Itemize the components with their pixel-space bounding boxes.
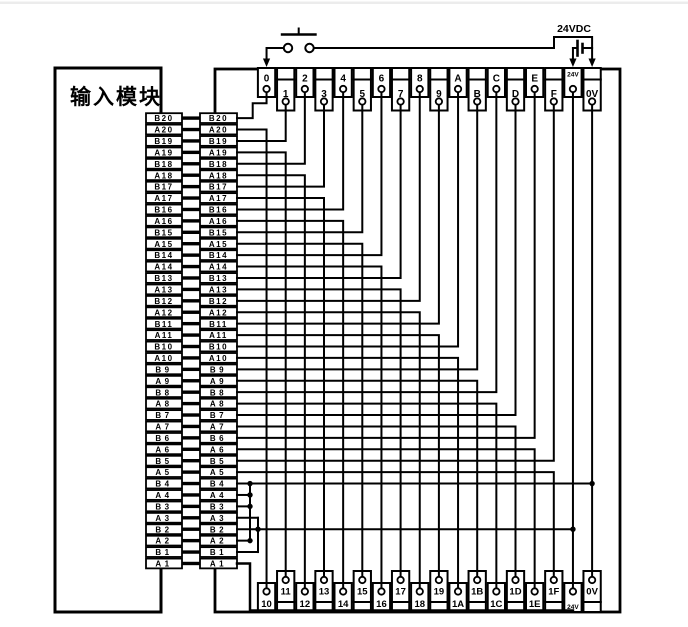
pin-ribbon-bar: [182, 162, 200, 165]
terminal-screw-circle: [455, 588, 461, 594]
pin-label: A20: [209, 126, 228, 135]
terminal-bottom-label: 10: [261, 599, 272, 610]
input-module-label: 输入模块: [70, 85, 162, 109]
pin-ribbon-bar: [182, 139, 200, 142]
terminal-top-label: 24V: [567, 72, 579, 79]
terminal-top-label: E: [531, 74, 538, 85]
terminal-screw-circle: [378, 86, 384, 92]
pin-label: A7: [210, 423, 227, 432]
pin-label: B17: [209, 183, 228, 192]
junction-dot: [255, 527, 260, 532]
pin-label: B13: [209, 274, 228, 283]
junction-dot: [247, 538, 252, 543]
pin-label: A15: [154, 240, 173, 249]
terminal-top-label: 8: [417, 74, 423, 85]
pin-label: B15: [209, 228, 228, 237]
terminal-top-stub: [430, 68, 447, 80]
pin-ribbon-bar: [182, 196, 200, 199]
terminal-screw-circle: [455, 86, 461, 92]
terminal-bottom-label: 1B: [471, 587, 483, 598]
pin-label: A15: [209, 240, 228, 249]
terminal-top-label: 0V: [586, 89, 599, 100]
pin-label: B15: [154, 228, 173, 237]
terminal-top-label: F: [551, 89, 557, 100]
pin-ribbon-bar: [182, 242, 200, 245]
pin-label: A14: [154, 263, 173, 272]
terminal-bottom-label: 16: [376, 599, 387, 610]
terminal-top-label: 9: [436, 89, 442, 100]
pin-ribbon-bar: [182, 470, 200, 473]
terminal-bottom-label: 1E: [529, 599, 541, 610]
wire-supply: [314, 37, 592, 59]
terminal-screw-circle: [474, 577, 480, 583]
pin-label: B10: [209, 343, 228, 352]
pin-label: A2: [210, 537, 227, 546]
terminal-top-label: 0: [264, 74, 270, 85]
diagram-canvas: 0123456789ABCDEF24V0V1011121314151617181…: [0, 0, 688, 627]
pin-label: B2: [210, 525, 227, 534]
terminal-screw-circle: [570, 588, 576, 594]
pin-label: B10: [154, 343, 173, 352]
arrow-down-icon: [263, 59, 270, 68]
terminal-top-label: 7: [398, 89, 404, 100]
pin-ribbon-bar: [182, 208, 200, 211]
pin-label: A18: [154, 171, 173, 180]
pin-ribbon-bar: [182, 356, 200, 359]
pin-label: B16: [209, 206, 228, 215]
pin-label: B4: [155, 480, 172, 489]
pin-label: B4: [210, 480, 227, 489]
terminal-screw-circle: [493, 588, 499, 594]
terminal-bottom-label: 19: [434, 587, 445, 598]
terminal-screw-circle: [340, 588, 346, 594]
terminal-screw-circle: [283, 577, 289, 583]
junction-dot: [247, 492, 252, 497]
terminal-bottom-label: 1D: [509, 587, 521, 598]
pin-label: A2: [155, 537, 172, 546]
terminal-top-label: 1: [283, 89, 289, 100]
terminal-top-label: 2: [302, 74, 308, 85]
terminal-top-stub: [392, 68, 409, 80]
pin-label: A12: [154, 308, 173, 317]
terminal-top-stub: [583, 68, 600, 80]
pin-ribbon-bar: [182, 550, 200, 553]
pin-label: B9: [155, 365, 172, 374]
terminal-screw-circle: [493, 86, 499, 92]
pin-ribbon-bar: [182, 459, 200, 462]
terminal-top-label: 5: [360, 89, 366, 100]
pin-label: B3: [210, 502, 227, 511]
pin-ribbon-bar: [182, 482, 200, 485]
terminal-bottom-label: 15: [357, 587, 368, 598]
pin-label: A9: [155, 377, 172, 386]
pin-label: A7: [155, 423, 172, 432]
pin-ribbon-bar: [182, 402, 200, 405]
terminal-screw-circle: [531, 588, 537, 594]
pin-label: A5: [155, 468, 172, 477]
terminal-screw-circle: [340, 86, 346, 92]
terminal-screw-circle: [570, 86, 576, 92]
terminal-top-stub: [354, 68, 371, 80]
terminal-top-stub: [469, 68, 486, 80]
terminal-top-stub: [315, 68, 332, 80]
pin-ribbon-bar: [182, 185, 200, 188]
pin-ribbon-bar: [182, 368, 200, 371]
pin-label: B16: [154, 206, 173, 215]
terminal-top-stub: [277, 68, 294, 80]
terminal-bottom-label: 18: [414, 599, 425, 610]
terminal-bottom-label: 11: [281, 587, 292, 598]
pin-label: B20: [154, 114, 173, 123]
pin-label: A4: [210, 491, 227, 500]
pin-label: A11: [209, 331, 228, 340]
terminal-screw-circle: [531, 86, 537, 92]
pin-ribbon-bar: [182, 505, 200, 508]
pin-label: A9: [210, 377, 227, 386]
pin-label: B18: [209, 160, 228, 169]
pin-label: B3: [155, 502, 172, 511]
terminal-bottom-label: 13: [319, 587, 330, 598]
pin-label: B1: [210, 548, 227, 557]
terminal-screw-circle: [417, 86, 423, 92]
pin-label: A20: [154, 126, 173, 135]
pin-label: B7: [210, 411, 227, 420]
terminal-top-stub: [507, 68, 524, 80]
pin-ribbon-bar: [182, 299, 200, 302]
pin-label: B12: [209, 297, 228, 306]
pin-ribbon-bar: [182, 151, 200, 154]
pin-ribbon-bar: [182, 390, 200, 393]
pin-label: A19: [209, 148, 228, 157]
pin-label: A8: [210, 400, 227, 409]
pin-ribbon-bar: [182, 345, 200, 348]
pin-label: B20: [209, 114, 228, 123]
pin-ribbon-bar: [182, 493, 200, 496]
pin-ribbon-bar: [182, 265, 200, 268]
terminal-screw-circle: [359, 577, 365, 583]
pin-label: B8: [210, 388, 227, 397]
pin-label: B11: [155, 320, 174, 329]
terminal-screw-circle: [512, 577, 518, 583]
pin-label: A10: [154, 354, 173, 363]
pin-label: B5: [210, 457, 227, 466]
pin-ribbon-bar: [182, 276, 200, 279]
pin-label: A17: [154, 194, 173, 203]
pin-ribbon-bar: [182, 379, 200, 382]
terminal-screw-circle: [378, 588, 384, 594]
terminal-bottom-label: 14: [338, 599, 349, 610]
pin-ribbon-bar: [182, 528, 200, 531]
terminal-screw-circle: [436, 577, 442, 583]
pin-label: A18: [209, 171, 228, 180]
terminal-block-box: [215, 69, 620, 612]
pin-ribbon-bar: [182, 288, 200, 291]
pin-ribbon-bar: [182, 539, 200, 542]
terminal-screw-circle: [302, 588, 308, 594]
pin-label: B5: [155, 457, 172, 466]
pin-label: A3: [210, 514, 227, 523]
terminal-top-stub: [545, 68, 562, 80]
pin-ribbon-bar: [182, 253, 200, 256]
pin-label: A16: [209, 217, 228, 226]
pin-label: A13: [209, 286, 228, 295]
pin-label: A11: [155, 331, 174, 340]
pin-label: B14: [209, 251, 228, 260]
terminal-bottom-label: 24V: [567, 604, 579, 611]
terminal-bottom-label: 1A: [452, 599, 464, 610]
terminal-bottom-label: 17: [395, 587, 406, 598]
terminal-top-label: 3: [321, 89, 327, 100]
pin-label: B6: [155, 434, 172, 443]
pin-label: B19: [154, 137, 173, 146]
pin-label: B2: [155, 525, 172, 534]
terminal-bottom-label: 12: [300, 599, 311, 610]
pin-label: A4: [155, 491, 172, 500]
pin-label: A12: [209, 308, 228, 317]
pin-ribbon-bar: [182, 413, 200, 416]
terminal-top-label: C: [493, 74, 500, 85]
pin-ribbon-bar: [182, 425, 200, 428]
arrow-down-icon: [569, 59, 576, 68]
pin-label: B9: [210, 365, 227, 374]
junction-dot: [570, 527, 575, 532]
pin-ribbon-bar: [182, 128, 200, 131]
pin-label: B14: [154, 251, 173, 260]
pin-label: A3: [155, 514, 172, 523]
pin-label: B8: [155, 388, 172, 397]
terminal-top-label: A: [454, 74, 461, 85]
pin-label: A17: [209, 194, 228, 203]
pin-label: A10: [209, 354, 228, 363]
pin-label: B18: [154, 160, 173, 169]
junction-dot: [247, 481, 252, 486]
pin-ribbon-bar: [182, 116, 200, 119]
power-source-label: 24VDC: [557, 23, 591, 35]
switch-contact-circle: [305, 44, 313, 52]
pin-label: B13: [154, 274, 173, 283]
pin-label: A5: [210, 468, 227, 477]
pin-label: A6: [210, 445, 227, 454]
terminal-top-label: 4: [340, 74, 346, 85]
pin-ribbon-bar: [182, 516, 200, 519]
terminal-bottom-stub: [583, 602, 600, 612]
pin-ribbon-bar: [182, 436, 200, 439]
pin-label: B19: [209, 137, 228, 146]
terminal-bottom-label: 0V: [586, 587, 598, 598]
terminal-screw-circle: [417, 588, 423, 594]
pin-label: A19: [154, 148, 173, 157]
pin-label: B17: [154, 183, 173, 192]
pin-ribbon-bar: [182, 174, 200, 177]
switch-contact-circle: [284, 44, 292, 52]
pin-ribbon-bar: [182, 333, 200, 336]
terminal-top-label: D: [512, 89, 519, 100]
wire-supply: [267, 48, 284, 59]
arrow-down-icon: [589, 59, 596, 68]
pin-label: B7: [155, 411, 172, 420]
pin-label: B12: [154, 297, 173, 306]
pin-label: A14: [209, 263, 228, 272]
terminal-screw-circle: [551, 577, 557, 583]
terminal-screw-circle: [589, 577, 595, 583]
pin-label: A1: [155, 560, 172, 569]
terminal-screw-circle: [263, 86, 269, 92]
terminal-screw-circle: [397, 577, 403, 583]
pin-label: A8: [155, 400, 172, 409]
terminal-screw-circle: [302, 86, 308, 92]
pin-ribbon-bar: [182, 448, 200, 451]
junction-dot: [589, 481, 594, 486]
pin-label: B1: [155, 548, 172, 557]
junction-dot: [247, 504, 252, 509]
terminal-screw-circle: [263, 588, 269, 594]
pin-label: A13: [154, 286, 173, 295]
pin-label: B6: [210, 434, 227, 443]
terminal-bottom-label: 1C: [490, 599, 502, 610]
window-top-edge: [0, 2, 688, 5]
pin-ribbon-bar: [182, 219, 200, 222]
terminal-top-label: B: [474, 89, 481, 100]
pin-ribbon-bar: [182, 562, 200, 565]
pin-ribbon-bar: [182, 231, 200, 234]
pin-label: A16: [154, 217, 173, 226]
pin-label: A1: [210, 560, 227, 569]
pin-label: A6: [155, 445, 172, 454]
pin-ribbon-bar: [182, 322, 200, 325]
wiring-diagram: 0123456789ABCDEF24V0V1011121314151617181…: [0, 0, 688, 627]
pin-ribbon-bar: [182, 311, 200, 314]
pin-label: B11: [209, 320, 228, 329]
terminal-bottom-label: 1F: [548, 587, 559, 598]
terminal-screw-circle: [321, 577, 327, 583]
terminal-top-label: 6: [379, 74, 385, 85]
